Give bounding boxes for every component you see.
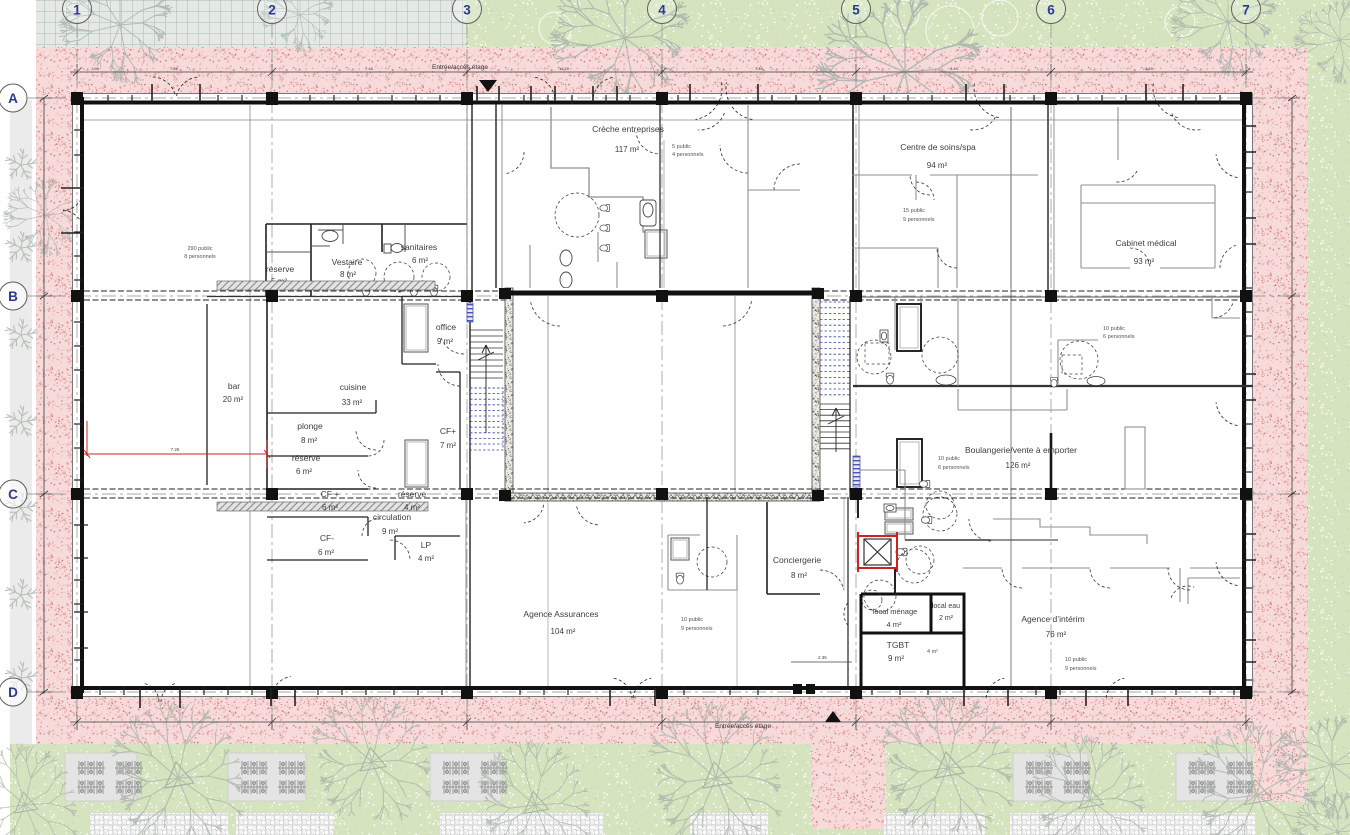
svg-text:1.98: 1.98 — [91, 66, 100, 71]
svg-text:126 m²: 126 m² — [1006, 461, 1031, 470]
svg-text:7.46: 7.46 — [170, 66, 179, 71]
svg-text:4 m²: 4 m² — [887, 620, 903, 629]
svg-text:5: 5 — [852, 3, 860, 18]
svg-text:7: 7 — [1242, 3, 1250, 18]
svg-text:cuisine: cuisine — [340, 382, 367, 392]
svg-text:290 public: 290 public — [187, 246, 212, 252]
svg-text:4 personnels: 4 personnels — [672, 152, 704, 158]
svg-text:circulation: circulation — [373, 512, 412, 522]
svg-text:TGBT: TGBT — [887, 640, 910, 650]
svg-text:bar: bar — [228, 381, 240, 391]
svg-text:Centre de soins/spa: Centre de soins/spa — [900, 142, 976, 152]
svg-text:6 personnels: 6 personnels — [1103, 334, 1135, 340]
svg-text:7 m²: 7 m² — [440, 441, 456, 450]
svg-text:Agence d’intérim: Agence d’intérim — [1021, 614, 1084, 624]
svg-text:15 public: 15 public — [903, 208, 925, 214]
svg-text:6: 6 — [1047, 3, 1055, 18]
svg-text:3: 3 — [463, 3, 471, 18]
svg-text:Entrée/accès étage: Entrée/accès étage — [715, 723, 771, 730]
svg-text:local ménage: local ménage — [873, 607, 918, 616]
svg-text:Vestaire: Vestaire — [332, 257, 363, 267]
svg-text:9 personnels: 9 personnels — [1065, 666, 1097, 672]
svg-text:Boulangerie/vente à emporter: Boulangerie/vente à emporter — [965, 445, 1077, 455]
svg-text:6 m²: 6 m² — [296, 467, 312, 476]
svg-text:94 m²: 94 m² — [927, 161, 948, 170]
svg-text:D: D — [8, 685, 18, 700]
svg-text:B: B — [8, 289, 18, 304]
svg-text:2.35: 2.35 — [818, 655, 827, 660]
svg-text:1: 1 — [73, 3, 81, 18]
svg-text:10 public: 10 public — [681, 617, 703, 623]
svg-text:9 m²: 9 m² — [382, 527, 398, 536]
svg-text:Entrée/accès étage: Entrée/accès étage — [432, 64, 488, 71]
svg-text:6 m²: 6 m² — [318, 548, 334, 557]
svg-text:4 m²: 4 m² — [404, 503, 420, 512]
svg-text:20 m²: 20 m² — [223, 395, 244, 404]
svg-text:7.46: 7.46 — [755, 66, 764, 71]
svg-text:9 personnels: 9 personnels — [903, 217, 935, 223]
svg-text:CF-: CF- — [320, 533, 334, 543]
svg-text:5 public: 5 public — [672, 144, 691, 150]
svg-text:6 m²: 6 m² — [322, 503, 338, 512]
svg-text:réserve: réserve — [398, 489, 427, 499]
svg-text:76 m²: 76 m² — [1046, 630, 1067, 639]
svg-text:6 personnels: 6 personnels — [938, 465, 970, 471]
svg-text:14.78: 14.78 — [559, 66, 570, 71]
svg-text:Conciergerie: Conciergerie — [773, 555, 821, 565]
svg-text:8.49: 8.49 — [1145, 66, 1154, 71]
svg-text:Cabinet médical: Cabinet médical — [1116, 238, 1177, 248]
svg-text:10 public: 10 public — [1065, 657, 1087, 663]
svg-text:93 m²: 93 m² — [1134, 257, 1155, 266]
svg-text:104 m²: 104 m² — [551, 627, 576, 636]
svg-text:réserve: réserve — [266, 264, 295, 274]
svg-text:10 public: 10 public — [938, 456, 960, 462]
svg-text:4 m²: 4 m² — [418, 554, 434, 563]
svg-text:4 m²: 4 m² — [927, 649, 938, 655]
svg-text:6 m²: 6 m² — [412, 256, 428, 265]
svg-text:office: office — [436, 322, 456, 332]
svg-text:8 m²: 8 m² — [791, 571, 807, 580]
svg-text:CF+: CF+ — [440, 426, 456, 436]
svg-text:LP: LP — [421, 540, 432, 550]
svg-text:33 m²: 33 m² — [342, 398, 363, 407]
svg-text:C: C — [8, 487, 18, 502]
svg-text:117 m²: 117 m² — [615, 145, 640, 154]
svg-text:9 m²: 9 m² — [888, 654, 904, 663]
svg-text:sanitaires: sanitaires — [401, 242, 437, 252]
svg-text:Agence Assurances: Agence Assurances — [523, 609, 598, 619]
svg-text:2: 2 — [268, 3, 276, 18]
svg-text:8 m²: 8 m² — [301, 436, 317, 445]
svg-text:7.46: 7.46 — [365, 66, 374, 71]
svg-text:4: 4 — [658, 3, 666, 18]
svg-text:8 personnels: 8 personnels — [184, 254, 216, 260]
svg-text:local eau: local eau — [932, 603, 960, 610]
svg-text:A: A — [8, 91, 18, 106]
svg-text:10 public: 10 public — [1103, 326, 1125, 332]
svg-text:réserve: réserve — [292, 453, 321, 463]
svg-text:8.49: 8.49 — [950, 66, 959, 71]
svg-text:9 personnels: 9 personnels — [681, 626, 713, 632]
svg-text:2 m²: 2 m² — [939, 615, 954, 622]
svg-text:Crèche entreprises: Crèche entreprises — [592, 124, 664, 134]
svg-text:plonge: plonge — [297, 421, 323, 431]
svg-text:CF +: CF + — [321, 489, 340, 499]
svg-text:7.26: 7.26 — [171, 447, 180, 452]
